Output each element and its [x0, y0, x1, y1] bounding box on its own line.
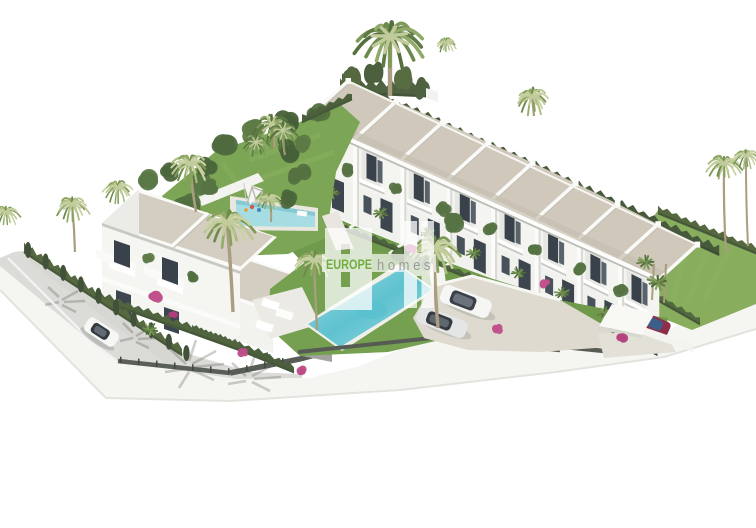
svg-text:EUROPE: EUROPE — [326, 257, 372, 272]
svg-text:homes: homes — [377, 258, 434, 274]
